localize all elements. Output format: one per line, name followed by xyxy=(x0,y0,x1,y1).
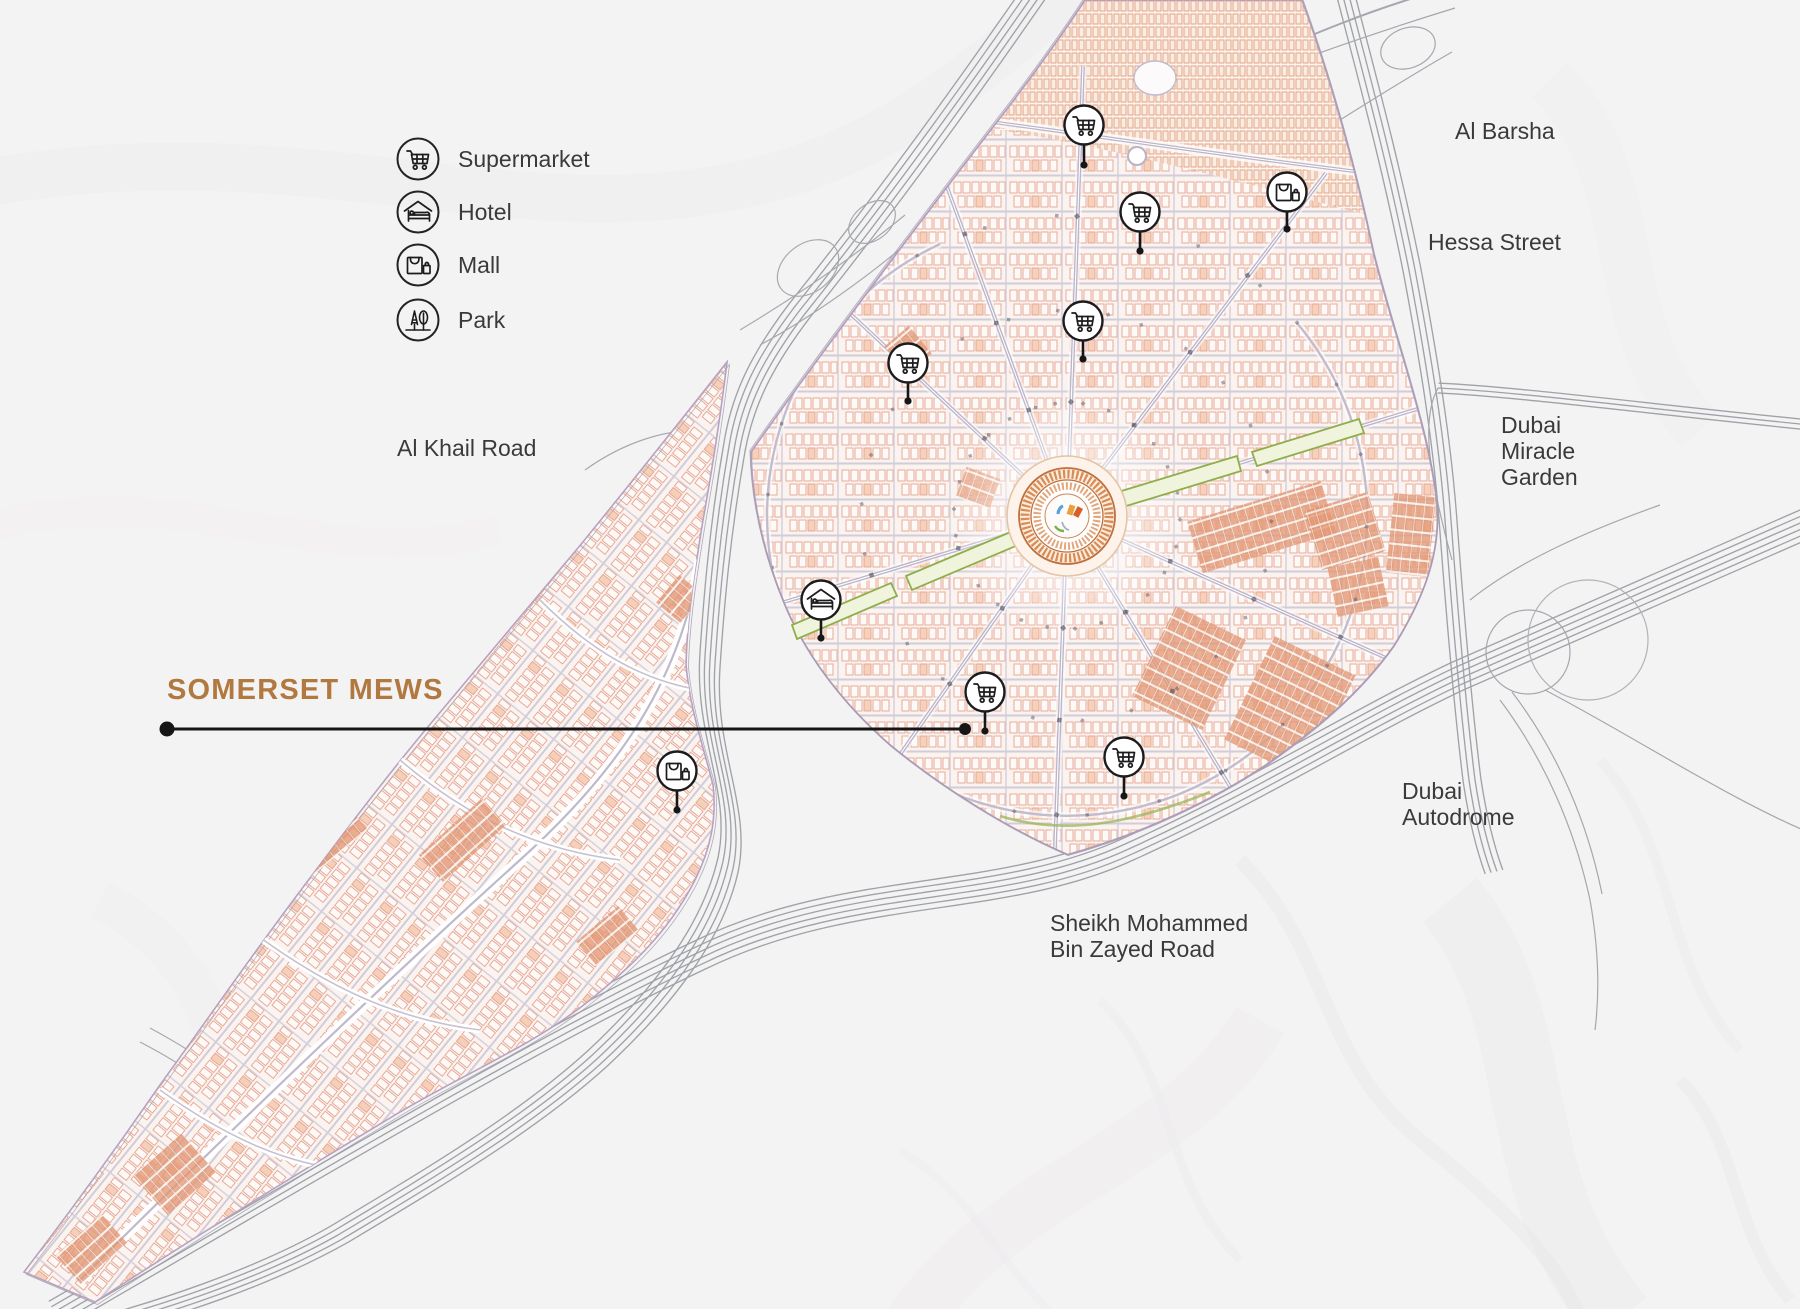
svg-text:Park: Park xyxy=(458,307,506,333)
svg-text:Dubai: Dubai xyxy=(1402,778,1462,804)
svg-text:Bin Zayed Road: Bin Zayed Road xyxy=(1050,936,1215,962)
svg-text:Supermarket: Supermarket xyxy=(458,146,590,172)
svg-text:Miracle: Miracle xyxy=(1501,438,1575,464)
svg-text:Autodrome: Autodrome xyxy=(1402,804,1515,830)
svg-text:Al Barsha: Al Barsha xyxy=(1455,118,1555,144)
svg-text:SOMERSET MEWS: SOMERSET MEWS xyxy=(167,674,444,706)
svg-text:Dubai: Dubai xyxy=(1501,412,1561,438)
svg-text:Garden: Garden xyxy=(1501,464,1578,490)
svg-text:Mall: Mall xyxy=(458,252,500,278)
svg-text:Al Khail Road: Al Khail Road xyxy=(397,435,536,461)
svg-text:Hotel: Hotel xyxy=(458,199,512,225)
svg-text:Hessa Street: Hessa Street xyxy=(1428,229,1562,255)
svg-text:Sheikh Mohammed: Sheikh Mohammed xyxy=(1050,910,1248,936)
